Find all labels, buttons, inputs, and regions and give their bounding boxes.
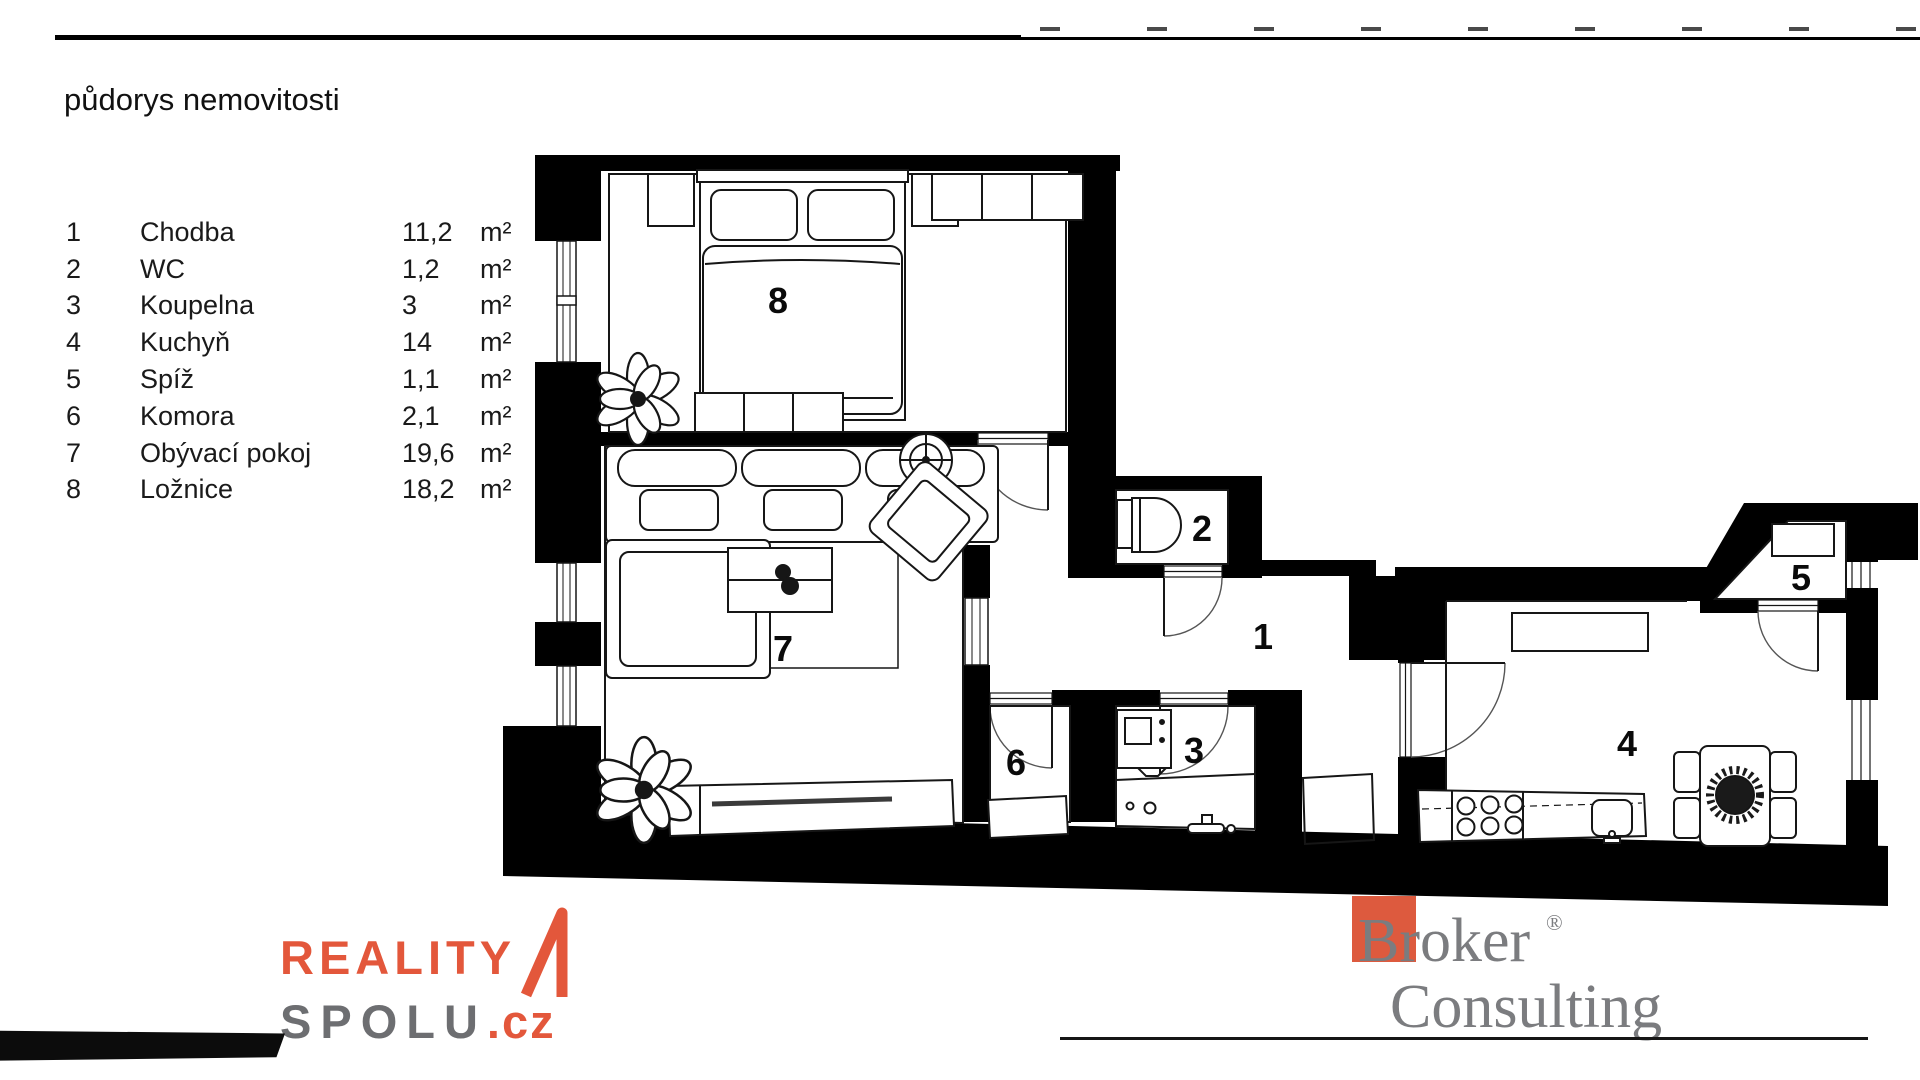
nightstand-left <box>648 174 694 226</box>
storage-shelf <box>988 796 1068 838</box>
broker-logo-line2: Consulting <box>1390 972 1662 1043</box>
room-label-7: 7 <box>773 628 793 669</box>
reality-logo-line2: SPOLU.cz <box>280 998 556 1045</box>
registered-mark: ® <box>1546 910 1563 936</box>
bathtub <box>1116 774 1255 833</box>
reality-logo-mark-icon <box>512 903 582 1003</box>
sideboard <box>668 780 954 836</box>
room-label-4: 4 <box>1617 723 1637 764</box>
room-label-3: 3 <box>1184 730 1204 771</box>
room-label-6: 6 <box>1006 742 1026 783</box>
wardrobe <box>932 174 1083 220</box>
room-label-1: 1 <box>1253 616 1273 657</box>
bed <box>697 170 908 420</box>
low-cabinet <box>695 393 843 432</box>
kitchen-counter <box>1418 790 1646 843</box>
washing-machine <box>1117 710 1171 776</box>
broker-logo-line1: Broker <box>1358 906 1530 977</box>
toilet <box>1117 498 1181 552</box>
bottom-rule <box>1060 1037 1868 1040</box>
furniture <box>606 170 1834 846</box>
kitchen-top-cabinet <box>1512 613 1648 651</box>
redacted-bar <box>0 1028 285 1062</box>
room-label-5: 5 <box>1791 557 1811 598</box>
floorplan-drawing: 8 7 2 1 6 3 4 5 <box>0 0 1920 1080</box>
coffee-table <box>728 548 832 612</box>
room-label-8: 8 <box>768 280 788 321</box>
room-label-2: 2 <box>1192 508 1212 549</box>
pantry-shelf <box>1772 524 1834 556</box>
page: půdorys nemovitosti 1Chodba11,2m² 2WC1,2… <box>0 0 1920 1080</box>
